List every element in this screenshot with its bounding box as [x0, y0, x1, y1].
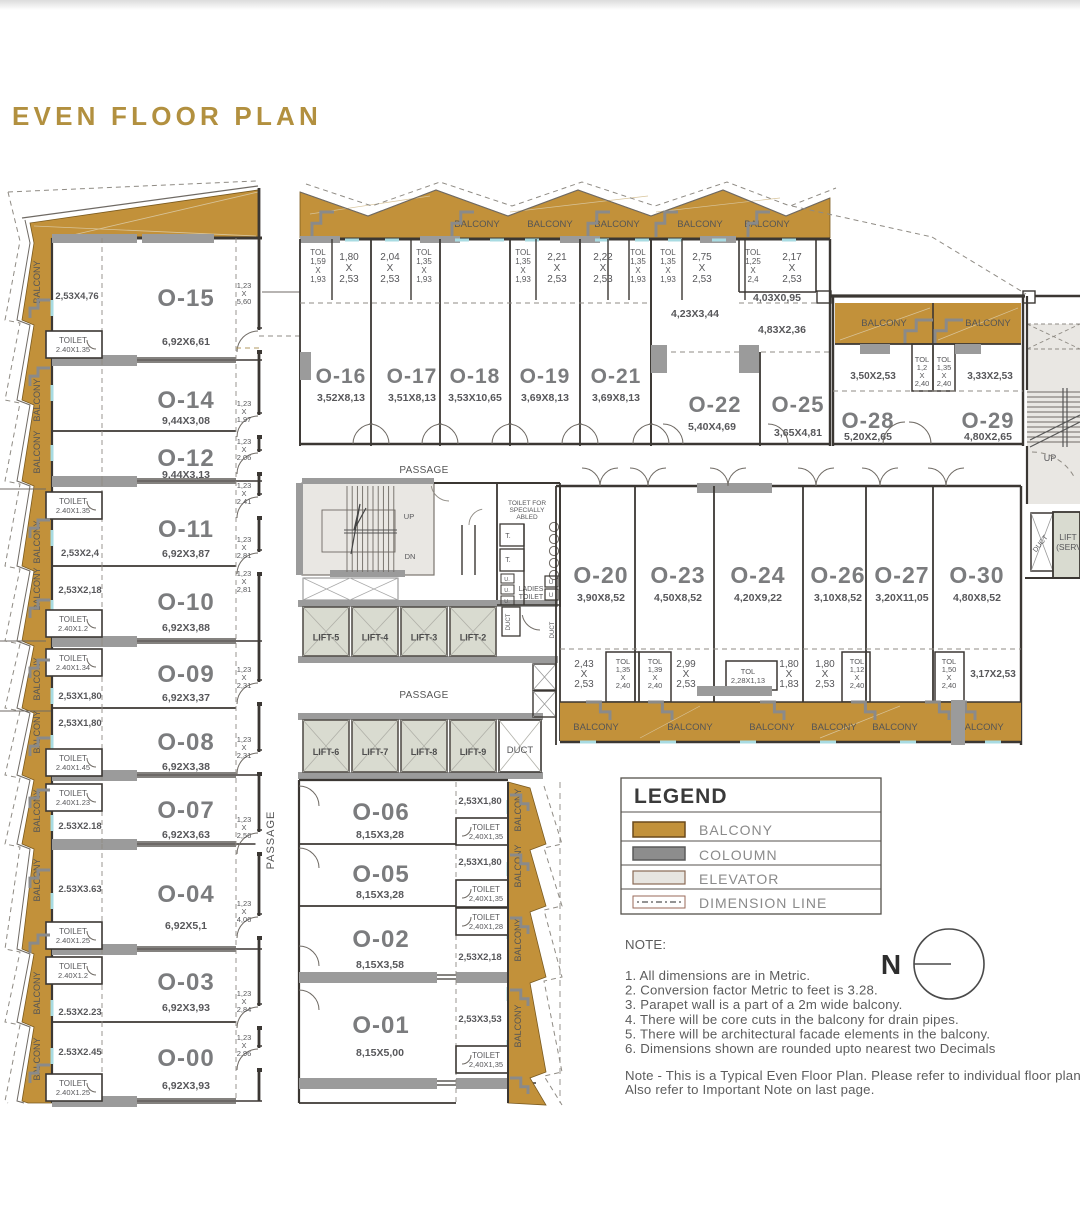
svg-text:2,53: 2,53 — [782, 274, 802, 285]
svg-text:PASSAGE: PASSAGE — [399, 465, 448, 476]
svg-text:O-27: O-27 — [874, 562, 929, 588]
svg-text:BALCONY: BALCONY — [513, 1004, 523, 1047]
svg-text:2.40X1.2: 2.40X1.2 — [58, 971, 88, 980]
svg-text:2,81: 2,81 — [237, 551, 252, 560]
svg-text:PASSAGE: PASSAGE — [399, 690, 448, 701]
svg-text:6,92X3,63: 6,92X3,63 — [162, 829, 210, 841]
svg-text:O-01: O-01 — [352, 1012, 409, 1039]
svg-text:BALCONY: BALCONY — [32, 260, 42, 303]
svg-text:O-11: O-11 — [158, 516, 214, 543]
svg-text:4,20X9,22: 4,20X9,22 — [734, 592, 782, 604]
svg-text:2,53: 2,53 — [676, 679, 696, 690]
svg-text:4,23X3,44: 4,23X3,44 — [671, 308, 719, 320]
svg-text:2.40X1.35: 2.40X1.35 — [56, 345, 90, 354]
svg-text:BALCONY: BALCONY — [32, 378, 42, 421]
svg-text:BALCONY: BALCONY — [594, 219, 640, 230]
svg-text:O-08: O-08 — [157, 729, 214, 756]
svg-text:O-03: O-03 — [157, 969, 214, 996]
svg-text:BALCONY: BALCONY — [527, 219, 573, 230]
svg-text:2.40X1.2: 2.40X1.2 — [58, 624, 88, 633]
svg-text:2,41: 2,41 — [237, 497, 252, 506]
svg-text:O-19: O-19 — [520, 365, 571, 388]
svg-text:2.53X3.63: 2.53X3.63 — [58, 884, 101, 895]
svg-text:X: X — [635, 266, 641, 275]
svg-text:U.: U. — [504, 588, 510, 594]
svg-text:4,80X8,52: 4,80X8,52 — [953, 592, 1001, 604]
svg-text:2,40: 2,40 — [648, 681, 663, 690]
svg-text:EVEN FLOOR PLAN: EVEN FLOOR PLAN — [12, 101, 322, 131]
svg-text:O-30: O-30 — [949, 562, 1004, 588]
svg-text:2.40X1.23: 2.40X1.23 — [56, 798, 90, 807]
svg-text:X: X — [554, 263, 561, 274]
svg-text:TOILET: TOILET — [59, 336, 87, 345]
svg-text:4. There will be core cuts in: 4. There will be core cuts in the balcon… — [625, 1012, 959, 1027]
svg-text:1,97: 1,97 — [237, 415, 252, 424]
svg-text:O-18: O-18 — [450, 365, 501, 388]
svg-text:2,53X2,18: 2,53X2,18 — [458, 952, 501, 963]
svg-text:TOILET: TOILET — [472, 823, 500, 832]
svg-text:2,53X2,18: 2,53X2,18 — [58, 585, 101, 596]
svg-text:2,4: 2,4 — [747, 275, 759, 284]
svg-text:LADIES: LADIES — [519, 586, 544, 593]
svg-text:X: X — [346, 263, 353, 274]
svg-text:6,92X3,38: 6,92X3,38 — [162, 761, 210, 773]
svg-text:O-15: O-15 — [157, 285, 214, 312]
svg-text:TOILET: TOILET — [59, 927, 87, 936]
svg-text:O-12: O-12 — [157, 445, 214, 472]
svg-text:X: X — [750, 266, 756, 275]
svg-text:DUCT: DUCT — [507, 745, 534, 756]
svg-text:4,03X0,95: 4,03X0,95 — [753, 292, 801, 304]
svg-text:BALCONY: BALCONY — [811, 722, 857, 733]
svg-text:2,75: 2,75 — [692, 252, 712, 263]
svg-text:BALCONY: BALCONY — [677, 219, 723, 230]
svg-text:TOL: TOL — [310, 248, 326, 257]
svg-text:2,53X1,80: 2,53X1,80 — [458, 857, 501, 868]
svg-text:3,50X2,53: 3,50X2,53 — [850, 371, 896, 382]
svg-text:O-00: O-00 — [157, 1045, 214, 1072]
svg-text:TOL: TOL — [515, 248, 531, 257]
svg-text:2,40X1,28: 2,40X1,28 — [469, 922, 503, 931]
svg-text:LIFT-8: LIFT-8 — [411, 747, 438, 757]
svg-text:O-22: O-22 — [689, 392, 742, 417]
svg-text:1,80: 1,80 — [339, 252, 359, 263]
svg-text:2,53: 2,53 — [593, 274, 613, 285]
svg-text:X: X — [421, 266, 427, 275]
svg-text:TOILET: TOILET — [59, 962, 87, 971]
svg-text:NOTE:: NOTE: — [625, 937, 666, 952]
svg-text:2.40X1.34: 2.40X1.34 — [56, 663, 90, 672]
svg-text:LIFT-6: LIFT-6 — [313, 747, 340, 757]
svg-text:2,17: 2,17 — [782, 252, 802, 263]
svg-text:2.40X1.25: 2.40X1.25 — [56, 1088, 90, 1097]
svg-text:U.: U. — [504, 577, 510, 583]
svg-text:2,28X1,13: 2,28X1,13 — [731, 676, 765, 685]
svg-text:2,53X1,80: 2,53X1,80 — [58, 691, 101, 702]
svg-text:TOILET: TOILET — [519, 594, 544, 601]
svg-text:2,40X1,35: 2,40X1,35 — [469, 894, 503, 903]
svg-text:3,33X2,53: 3,33X2,53 — [967, 371, 1013, 382]
svg-text:(SERV: (SERV — [1056, 542, 1080, 552]
svg-text:2,53: 2,53 — [815, 679, 835, 690]
svg-text:Also refer to Important Note o: Also refer to Important Note on last pag… — [625, 1082, 875, 1097]
svg-text:8,15X3,28: 8,15X3,28 — [356, 829, 404, 841]
svg-text:6,92X5,1: 6,92X5,1 — [165, 920, 207, 932]
svg-text:2,31: 2,31 — [237, 681, 252, 690]
svg-text:U.: U. — [504, 599, 510, 605]
svg-text:PASSAGE: PASSAGE — [265, 811, 277, 870]
svg-text:TOILET: TOILET — [59, 497, 87, 506]
svg-text:5,20X2,65: 5,20X2,65 — [844, 431, 892, 443]
svg-text:T.: T. — [505, 557, 511, 564]
svg-text:2,53: 2,53 — [547, 274, 567, 285]
svg-text:LIFT-5: LIFT-5 — [313, 633, 340, 643]
svg-text:2,96: 2,96 — [237, 1049, 252, 1058]
svg-text:U: U — [549, 580, 553, 586]
svg-text:6,92X3,93: 6,92X3,93 — [162, 1080, 210, 1092]
svg-text:LIFT-7: LIFT-7 — [362, 747, 389, 757]
svg-text:Note - This is a Typical Even: Note - This is a Typical Even Floor Plan… — [625, 1068, 1080, 1083]
svg-text:O-29: O-29 — [962, 408, 1015, 433]
svg-text:O-10: O-10 — [157, 589, 214, 616]
svg-text:O-06: O-06 — [352, 799, 409, 826]
svg-text:X: X — [315, 266, 321, 275]
svg-text:1,59: 1,59 — [310, 257, 326, 266]
svg-text:2,56: 2,56 — [237, 831, 252, 840]
svg-text:TOILET: TOILET — [472, 913, 500, 922]
svg-text:O-23: O-23 — [650, 562, 705, 588]
svg-text:4,06: 4,06 — [237, 915, 252, 924]
svg-text:2,53: 2,53 — [380, 274, 400, 285]
svg-text:BALCONY: BALCONY — [513, 844, 523, 887]
svg-text:3. Parapet wall is a part of a: 3. Parapet wall is a part of a 2m wide b… — [625, 997, 902, 1012]
svg-text:LIFT-9: LIFT-9 — [460, 747, 487, 757]
svg-text:COLOUMN: COLOUMN — [699, 847, 778, 863]
svg-text:X: X — [387, 263, 394, 274]
svg-text:DIMENSION LINE: DIMENSION LINE — [699, 895, 827, 911]
svg-text:2.53X2.45: 2.53X2.45 — [58, 1047, 102, 1058]
svg-text:2,21: 2,21 — [547, 252, 567, 263]
svg-text:6. Dimensions shown are rounde: 6. Dimensions shown are rounded upto nea… — [625, 1041, 996, 1056]
svg-text:X: X — [699, 263, 706, 274]
svg-text:O-07: O-07 — [157, 797, 214, 824]
svg-text:ABLED: ABLED — [516, 514, 538, 521]
svg-text:1,35: 1,35 — [416, 257, 432, 266]
svg-text:2,40X1,35: 2,40X1,35 — [469, 832, 503, 841]
svg-text:TOL: TOL — [745, 248, 761, 257]
svg-text:2,53: 2,53 — [574, 679, 594, 690]
svg-text:3,90X8,52: 3,90X8,52 — [577, 592, 625, 604]
svg-text:1,35: 1,35 — [630, 257, 646, 266]
svg-text:T.: T. — [505, 533, 511, 540]
svg-text:BALCONY: BALCONY — [32, 971, 42, 1014]
svg-text:1,93: 1,93 — [310, 275, 326, 284]
svg-text:BALCONY: BALCONY — [573, 722, 619, 733]
svg-text:1,93: 1,93 — [660, 275, 676, 284]
svg-text:O-26: O-26 — [810, 562, 865, 588]
svg-text:BALCONY: BALCONY — [32, 430, 42, 473]
svg-text:N: N — [881, 949, 901, 980]
svg-text:O-14: O-14 — [157, 387, 214, 414]
svg-text:1,35: 1,35 — [660, 257, 676, 266]
svg-text:1. All dimensions are in Metr: 1. All dimensions are in Metric. — [625, 968, 810, 983]
svg-text:BALCONY: BALCONY — [749, 722, 795, 733]
svg-text:UP: UP — [404, 512, 414, 521]
svg-text:LIFT-2: LIFT-2 — [460, 633, 487, 643]
svg-text:5,60: 5,60 — [237, 297, 252, 306]
svg-text:5. There will be architectural: 5. There will be architectural facade el… — [625, 1026, 990, 1041]
svg-text:LIFT-3: LIFT-3 — [411, 633, 438, 643]
svg-text:TOILET: TOILET — [59, 1079, 87, 1088]
svg-text:2,40: 2,40 — [942, 681, 957, 690]
svg-text:DUCT: DUCT — [506, 613, 512, 630]
svg-text:LIFT-4: LIFT-4 — [362, 633, 389, 643]
svg-text:6,92X3,87: 6,92X3,87 — [162, 548, 210, 560]
svg-text:2.40X1.25: 2.40X1.25 — [56, 936, 90, 945]
svg-text:TOL: TOL — [416, 248, 432, 257]
svg-text:2,04: 2,04 — [380, 252, 400, 263]
svg-text:DN: DN — [405, 552, 416, 561]
svg-text:TOILET: TOILET — [59, 615, 87, 624]
svg-text:O-17: O-17 — [387, 365, 438, 388]
svg-text:BALCONY: BALCONY — [861, 318, 907, 329]
svg-text:1,93: 1,93 — [630, 275, 646, 284]
svg-text:2,53: 2,53 — [339, 274, 359, 285]
svg-text:O-09: O-09 — [157, 661, 214, 688]
svg-text:LEGEND: LEGEND — [634, 785, 728, 808]
svg-text:8,15X5,00: 8,15X5,00 — [356, 1047, 404, 1059]
svg-text:2,40: 2,40 — [850, 681, 865, 690]
svg-text:4,50X8,52: 4,50X8,52 — [654, 592, 702, 604]
svg-text:UP: UP — [1044, 453, 1057, 463]
svg-text:6,92X6,61: 6,92X6,61 — [162, 336, 210, 348]
svg-text:3,53X10,65: 3,53X10,65 — [448, 392, 502, 404]
svg-text:2,31: 2,31 — [237, 751, 252, 760]
svg-text:2. Conversion factor Metric to: 2. Conversion factor Metric to feet is 3… — [625, 983, 878, 998]
svg-text:3,69X8,13: 3,69X8,13 — [592, 392, 640, 404]
svg-text:2.53X2.18: 2.53X2.18 — [58, 821, 101, 832]
svg-text:9,44X3,13: 9,44X3,13 — [162, 469, 210, 481]
svg-text:TOILET: TOILET — [59, 789, 87, 798]
svg-text:2,40: 2,40 — [937, 379, 952, 388]
svg-text:5,40X4,69: 5,40X4,69 — [688, 421, 736, 433]
svg-text:2,40: 2,40 — [616, 681, 631, 690]
svg-text:2.40X1.35: 2.40X1.35 — [56, 506, 90, 515]
svg-text:BALCONY: BALCONY — [699, 822, 773, 838]
svg-text:TOL: TOL — [630, 248, 646, 257]
svg-text:SPECIALLY: SPECIALLY — [510, 507, 546, 514]
svg-text:3,52X8,13: 3,52X8,13 — [317, 392, 365, 404]
svg-text:TOILET: TOILET — [59, 654, 87, 663]
svg-text:2,53X1,80: 2,53X1,80 — [458, 796, 501, 807]
svg-text:1,93: 1,93 — [416, 275, 432, 284]
svg-text:2.53X2.23: 2.53X2.23 — [58, 1007, 101, 1018]
svg-text:2,84: 2,84 — [237, 1005, 252, 1014]
svg-text:2.40X1.45: 2.40X1.45 — [56, 763, 90, 772]
svg-text:O-02: O-02 — [352, 926, 409, 953]
svg-text:2,53X2,4: 2,53X2,4 — [61, 548, 100, 559]
svg-text:4,80X2,65: 4,80X2,65 — [964, 431, 1012, 443]
svg-text:3,10X8,52: 3,10X8,52 — [814, 592, 862, 604]
svg-text:1,83: 1,83 — [779, 679, 799, 690]
svg-text:TOILET FOR: TOILET FOR — [508, 500, 546, 507]
svg-text:3,69X8,13: 3,69X8,13 — [521, 392, 569, 404]
svg-text:2,40X1,35: 2,40X1,35 — [469, 1060, 503, 1069]
svg-text:8,15X3,58: 8,15X3,58 — [356, 959, 404, 971]
svg-text:6,92X3,37: 6,92X3,37 — [162, 692, 210, 704]
svg-text:O-21: O-21 — [591, 365, 642, 388]
svg-text:O-04: O-04 — [157, 881, 214, 908]
svg-text:2,40: 2,40 — [915, 379, 930, 388]
svg-text:BALCONY: BALCONY — [667, 722, 713, 733]
svg-text:6,92X3,93: 6,92X3,93 — [162, 1002, 210, 1014]
svg-text:3,51X8,13: 3,51X8,13 — [388, 392, 436, 404]
svg-text:ELEVATOR: ELEVATOR — [699, 871, 779, 887]
svg-text:2,81: 2,81 — [237, 585, 252, 594]
svg-text:2,22: 2,22 — [593, 252, 613, 263]
svg-text:X: X — [789, 263, 796, 274]
svg-text:BALCONY: BALCONY — [958, 722, 1004, 733]
svg-text:TOL: TOL — [660, 248, 676, 257]
svg-text:O-25: O-25 — [772, 392, 825, 417]
svg-text:X: X — [665, 266, 671, 275]
svg-text:U: U — [549, 593, 553, 599]
svg-text:TOILET: TOILET — [472, 885, 500, 894]
svg-text:9,44X3,08: 9,44X3,08 — [162, 415, 210, 427]
svg-text:X: X — [600, 263, 607, 274]
svg-text:4,83X2,36: 4,83X2,36 — [758, 324, 806, 336]
svg-text:1,35: 1,35 — [515, 257, 531, 266]
svg-text:6,92X3,88: 6,92X3,88 — [162, 622, 210, 634]
svg-text:O-16: O-16 — [316, 365, 367, 388]
svg-text:O-24: O-24 — [730, 562, 785, 588]
svg-text:TOL: TOL — [741, 667, 755, 676]
svg-text:2,53X3,53: 2,53X3,53 — [458, 1014, 501, 1025]
svg-text:3,17X2,53: 3,17X2,53 — [970, 669, 1016, 680]
svg-text:TOILET: TOILET — [59, 754, 87, 763]
svg-text:BALCONY: BALCONY — [872, 722, 918, 733]
svg-text:O-28: O-28 — [842, 408, 895, 433]
svg-text:8,15X3,28: 8,15X3,28 — [356, 889, 404, 901]
svg-text:BALCONY: BALCONY — [965, 318, 1011, 329]
svg-text:2,53X1,80: 2,53X1,80 — [58, 718, 101, 729]
svg-text:1,93: 1,93 — [515, 275, 531, 284]
svg-text:O-20: O-20 — [573, 562, 628, 588]
svg-text:2,06: 2,06 — [237, 453, 252, 462]
svg-text:LIFT: LIFT — [1059, 532, 1076, 542]
svg-text:1,25: 1,25 — [745, 257, 761, 266]
svg-text:TOILET: TOILET — [472, 1051, 500, 1060]
svg-text:O-05: O-05 — [352, 861, 409, 888]
svg-text:X: X — [520, 266, 526, 275]
svg-text:2,53X4,76: 2,53X4,76 — [55, 291, 98, 302]
svg-text:2,53: 2,53 — [692, 274, 712, 285]
svg-text:3,20X11,05: 3,20X11,05 — [875, 592, 928, 604]
svg-text:BALCONY: BALCONY — [32, 858, 42, 901]
